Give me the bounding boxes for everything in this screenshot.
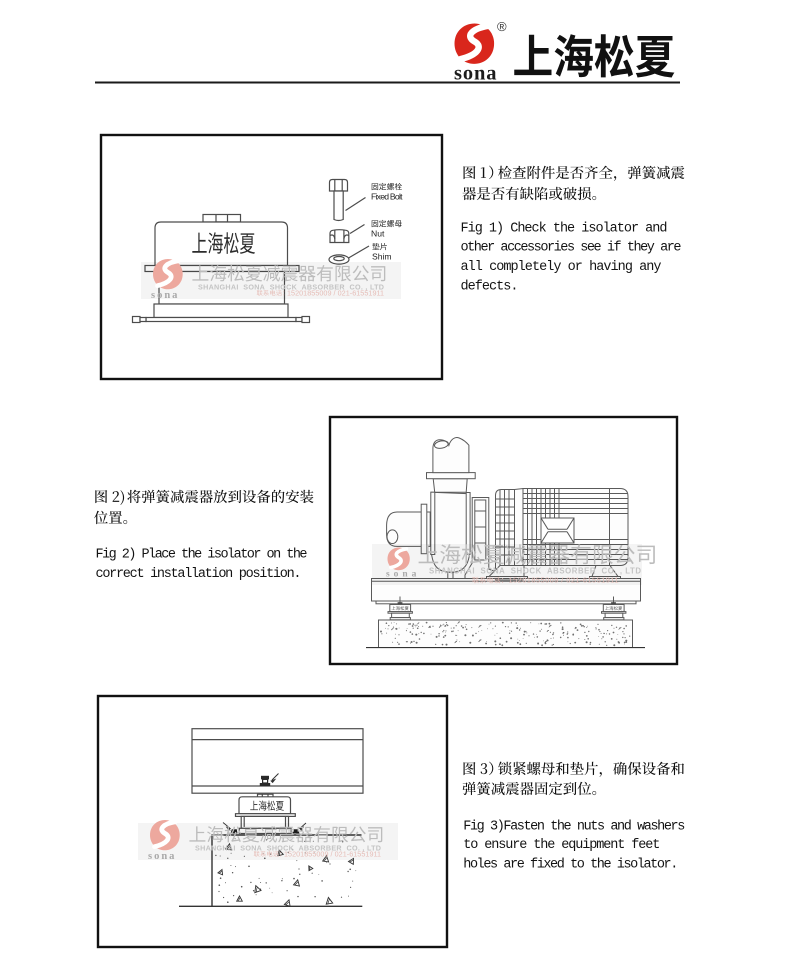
svg-text:®: ® [497,19,507,34]
svg-text:correct installation position.: correct installation position. [96,567,302,582]
svg-text:Shim: Shim [372,252,392,262]
svg-text:Fig 1) Check the isolator and: Fig 1) Check the isolator and [461,221,668,236]
svg-text:Fixed Bolt: Fixed Bolt [371,192,403,202]
svg-text:to ensure the equipment feet: to ensure the equipment feet [463,838,660,853]
svg-text:Fig 2) Place the isolator on t: Fig 2) Place the isolator on the [96,547,308,562]
svg-text:all completely or having any: all completely or having any [461,260,662,275]
svg-text:Fig 3)Fasten the nuts and wash: Fig 3)Fasten the nuts and washers [463,819,685,834]
svg-text:other accessories see if they: other accessories see if they are [461,241,682,256]
svg-text:Nut: Nut [371,229,385,239]
svg-text:sona: sona [454,63,498,85]
svg-text:holes are fixed to the isolato: holes are fixed to the isolator. [463,857,678,872]
svg-text:defects.: defects. [461,279,519,294]
